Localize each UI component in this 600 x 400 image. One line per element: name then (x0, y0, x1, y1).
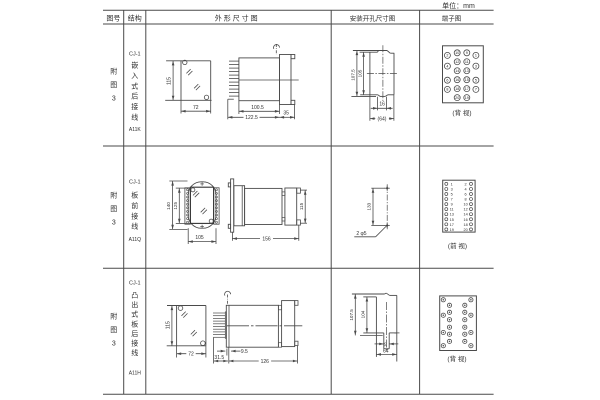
svg-text:10: 10 (455, 51, 459, 55)
svg-text:接: 接 (131, 211, 138, 220)
svg-text:7: 7 (451, 198, 453, 202)
svg-text:140: 140 (166, 202, 171, 210)
svg-text:后: 后 (131, 329, 138, 338)
svg-text:外 形 尺 寸 图: 外 形 尺 寸 图 (215, 13, 258, 22)
svg-text:3: 3 (112, 220, 116, 227)
svg-text:16: 16 (455, 78, 459, 82)
svg-text:105: 105 (195, 235, 204, 241)
svg-text:附: 附 (110, 312, 117, 321)
svg-text:3: 3 (112, 96, 116, 103)
svg-text:3: 3 (475, 64, 477, 68)
svg-text:31.5: 31.5 (214, 355, 224, 361)
svg-text:6: 6 (465, 193, 467, 197)
svg-text:线: 线 (131, 348, 138, 357)
svg-text:7: 7 (475, 88, 477, 92)
svg-text:16: 16 (463, 218, 467, 222)
svg-text:72: 72 (193, 105, 199, 111)
svg-text:凸: 凸 (131, 292, 138, 300)
svg-text:9: 9 (451, 203, 453, 207)
svg-text:嵌: 嵌 (131, 62, 138, 70)
svg-text:后: 后 (131, 92, 138, 101)
svg-text:1: 1 (475, 54, 477, 58)
svg-text:14: 14 (463, 213, 467, 217)
svg-text:105: 105 (357, 69, 362, 77)
svg-text:(前 视): (前 视) (448, 241, 467, 250)
svg-text:(背 视): (背 视) (447, 354, 466, 363)
svg-text:板: 板 (131, 191, 138, 200)
svg-text:CJ-1: CJ-1 (129, 180, 141, 186)
svg-text:线: 线 (131, 222, 138, 231)
svg-text:18: 18 (463, 223, 467, 227)
svg-text:14: 14 (455, 69, 459, 73)
svg-text:前: 前 (131, 201, 138, 210)
svg-text:1: 1 (451, 182, 453, 186)
svg-text:18: 18 (455, 87, 459, 91)
svg-text:9.5: 9.5 (241, 349, 248, 355)
svg-text:A11K: A11K (129, 127, 142, 133)
svg-text:式: 式 (131, 81, 138, 90)
svg-text:A11H: A11H (129, 371, 142, 377)
svg-text:入: 入 (131, 72, 138, 80)
svg-text:125: 125 (173, 202, 178, 210)
svg-text:15: 15 (465, 78, 469, 82)
svg-text:图: 图 (110, 81, 117, 89)
svg-text:4: 4 (446, 64, 448, 68)
svg-text:133: 133 (367, 202, 372, 210)
svg-text:接: 接 (131, 339, 138, 348)
svg-text:19: 19 (465, 96, 469, 100)
svg-text:图: 图 (110, 326, 117, 334)
svg-text:单位：mm: 单位：mm (442, 1, 475, 10)
svg-text:(背 视): (背 视) (452, 108, 471, 117)
svg-text:17: 17 (450, 223, 454, 227)
svg-text:16: 16 (379, 101, 385, 107)
svg-text:接: 接 (131, 102, 138, 111)
svg-text:72: 72 (188, 352, 194, 358)
svg-text:126: 126 (261, 359, 270, 365)
svg-text:156: 156 (262, 237, 271, 243)
svg-text:10: 10 (463, 203, 467, 207)
svg-text:图号: 图号 (106, 14, 120, 22)
svg-text:13: 13 (450, 213, 454, 217)
svg-text:107.5: 107.5 (349, 309, 354, 321)
svg-text:19: 19 (450, 228, 454, 232)
svg-text:板: 板 (131, 319, 138, 328)
svg-text:CJ-1: CJ-1 (129, 281, 141, 287)
svg-text:(64): (64) (378, 117, 387, 123)
svg-text:图: 图 (110, 205, 117, 213)
svg-text:结构: 结构 (128, 13, 142, 22)
svg-text:107.5: 107.5 (350, 69, 355, 81)
svg-text:出: 出 (131, 300, 138, 309)
svg-text:4: 4 (465, 187, 467, 191)
svg-text:式: 式 (131, 310, 138, 319)
svg-text:2: 2 (446, 54, 448, 58)
svg-text:15: 15 (450, 218, 454, 222)
svg-text:100.5: 100.5 (251, 105, 264, 111)
svg-text:5: 5 (451, 193, 453, 197)
svg-text:6: 6 (446, 79, 448, 83)
svg-text:115: 115 (299, 202, 304, 210)
svg-text:8: 8 (465, 198, 467, 202)
svg-text:线: 线 (131, 113, 138, 122)
svg-text:附: 附 (110, 191, 117, 200)
svg-text:64: 64 (383, 349, 389, 355)
svg-text:8: 8 (446, 88, 448, 92)
svg-text:13: 13 (465, 69, 469, 73)
svg-text:20: 20 (455, 96, 459, 100)
svg-text:3: 3 (451, 187, 453, 191)
svg-text:9: 9 (466, 51, 468, 55)
svg-text:104: 104 (361, 310, 366, 318)
svg-text:17: 17 (465, 87, 469, 91)
svg-text:16: 16 (383, 342, 388, 347)
svg-text:12: 12 (455, 60, 459, 64)
svg-text:A11Q: A11Q (129, 237, 142, 243)
svg-text:11: 11 (450, 208, 454, 212)
svg-text:安装开孔尺寸图: 安装开孔尺寸图 (350, 13, 396, 22)
svg-text:附: 附 (110, 67, 117, 76)
svg-text:35: 35 (283, 110, 289, 116)
svg-text:3: 3 (112, 341, 116, 348)
svg-text:11: 11 (465, 60, 469, 64)
svg-text:2: 2 (465, 182, 467, 186)
svg-text:115: 115 (167, 77, 173, 85)
svg-text:端子图: 端子图 (442, 13, 462, 22)
svg-text:115: 115 (166, 321, 172, 329)
svg-text:5: 5 (475, 79, 477, 83)
svg-text:122.5: 122.5 (245, 115, 258, 121)
svg-text:CJ-1: CJ-1 (129, 52, 141, 58)
svg-text:12: 12 (463, 208, 467, 212)
svg-text:2 φ5: 2 φ5 (356, 231, 366, 237)
svg-text:20: 20 (463, 228, 467, 232)
